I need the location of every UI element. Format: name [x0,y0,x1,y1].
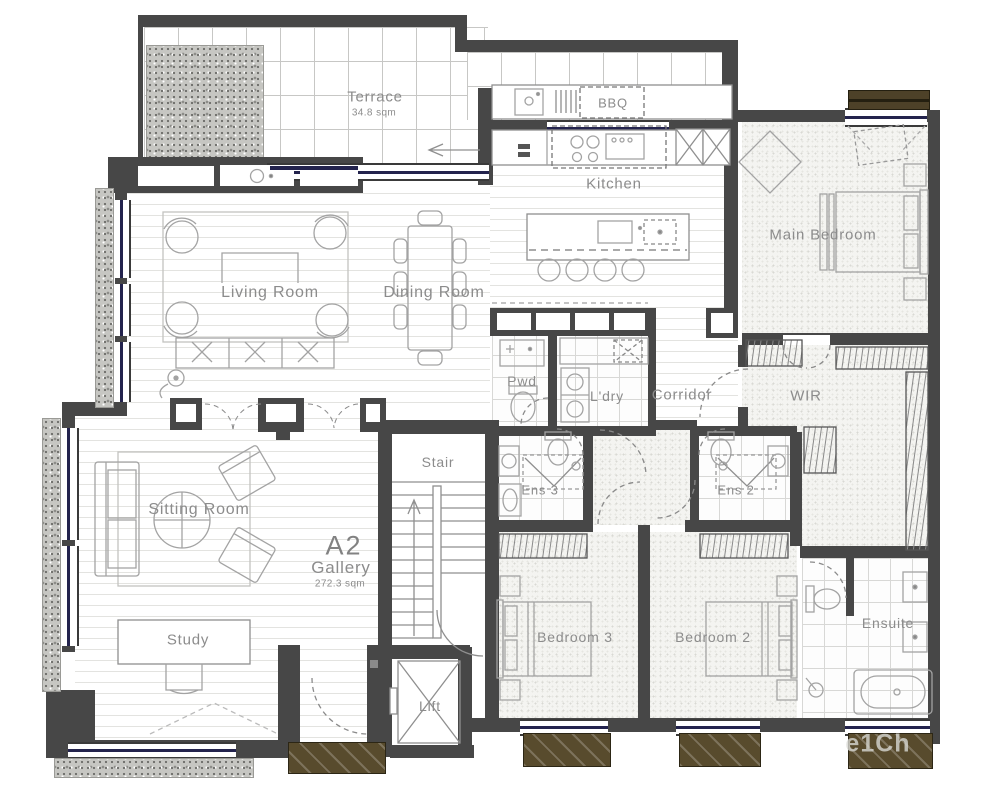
wall [690,432,699,530]
wall [455,40,732,52]
bedroom2-floor [650,532,797,718]
wall [490,426,656,436]
room-label-bedroom2: Bedroom 2 [675,629,751,645]
wall [738,407,748,427]
wall [724,122,738,333]
room-label-ens3: Ens 3 [521,483,558,498]
pier-inset [176,404,196,422]
room-label-bedroom3: Bedroom 3 [537,629,613,645]
room-label-bbq: BBQ [598,96,628,111]
window [58,428,79,540]
room-label-corridor: Corridor [652,387,713,404]
room-label-ldry: L'dry [590,388,624,404]
wall [392,420,499,434]
awning [679,733,761,767]
room-label-ens2: Ens 2 [717,483,754,498]
kitchen-floor [490,132,728,308]
entry-floor [300,650,367,740]
awning [848,90,930,110]
unit-name: Gallery [311,558,370,578]
wall [638,525,650,718]
room-label-living: Living Room [221,284,319,302]
closet-inset [711,313,733,333]
room-label-wir: WIR [790,388,822,405]
watermark: e1Ch [845,730,910,759]
wall [548,333,557,428]
room-label-sitting: Sitting Room [148,501,249,519]
pier-inset [366,404,380,422]
buffet-unit [536,313,570,330]
wall [390,745,474,758]
terrace-planter [146,45,264,174]
wall [742,333,928,345]
wall [378,420,392,662]
wall [583,432,593,530]
bedroom3-floor [497,532,638,718]
wall [138,24,143,174]
room-label-pwd: Pwd [507,373,537,389]
wall-pier-notch [276,430,290,440]
room-label-lift: Lift [419,698,441,714]
ens3-floor [497,432,585,520]
window [845,108,927,127]
ensuite-floor [802,558,928,718]
wall [648,308,656,433]
wall [485,420,499,732]
wall [485,520,593,532]
wall [367,647,392,757]
tv-joinery [138,166,214,186]
window [111,342,131,402]
wall [492,120,548,133]
entry-mat [288,742,386,774]
wall [690,426,797,436]
buffet-unit [575,313,609,330]
room-area-terrace: 34.8 sqm [352,108,396,119]
unit-id: A2 [325,531,362,562]
window [111,200,131,278]
room-label-stair: Stair [422,454,455,470]
wall [800,546,930,558]
window [68,742,236,759]
buffet-unit [497,313,531,330]
wall [846,558,854,616]
room-label-kitchen: Kitchen [586,176,642,193]
ens2-floor [697,432,790,520]
pier-inset [266,404,296,422]
room-label-dining: Dining Room [383,284,484,302]
room-label-study: Study [167,632,209,649]
window [111,284,131,336]
wall [668,120,724,133]
door-opening [783,335,830,345]
wall [685,520,797,532]
room-label-ensuite: Ensuite [862,615,914,631]
tv-joinery [300,166,358,186]
planter-strip [54,758,254,778]
window [58,546,79,646]
room-label-terrace: Terrace [347,89,403,106]
bedroom-hall-floor [585,430,697,525]
room-label-main-bedroom: Main Bedroom [769,227,876,244]
wall [738,345,748,367]
window [547,120,669,137]
planter-strip [95,188,114,408]
awning [523,733,611,767]
floor-plan: Terrace 34.8 sqm BBQ Kitchen Main Bedroo… [0,0,1000,786]
ldry-floor [553,333,650,428]
planter-strip [42,418,61,692]
wall [928,110,940,744]
buffet-unit [614,313,645,330]
wall [138,15,464,27]
fireplace-joinery [220,165,294,186]
unit-area: 272.3 sqm [315,579,365,590]
wall [458,647,472,757]
